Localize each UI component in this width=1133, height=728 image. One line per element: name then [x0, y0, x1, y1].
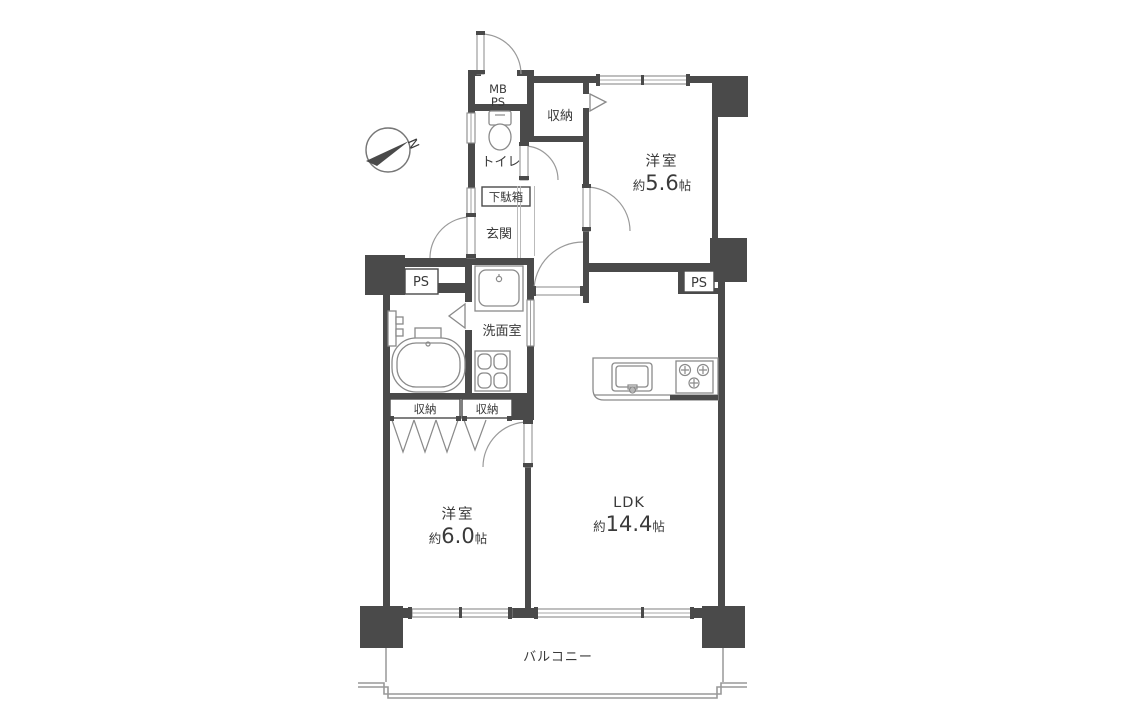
meter-box-label-line2: PS	[491, 95, 505, 109]
washing-machine-pan	[475, 351, 510, 391]
washbasin	[475, 266, 523, 311]
bath-folding-door	[449, 304, 465, 328]
column-mid-right	[710, 238, 747, 282]
door-swing	[481, 34, 521, 74]
floor-plan-canvas: N MB PS 収納 トイレ 下駄箱 玄関 PS PS 洗面室 収納 収納 洋室…	[0, 0, 1133, 728]
kitchen-counter	[593, 358, 718, 400]
svg-text:LDK: LDK	[613, 495, 645, 511]
bathtub	[392, 328, 465, 392]
ldk-label: LDK 約14.4帖	[593, 495, 665, 536]
closet-right-label: 収納	[476, 402, 499, 416]
bedroom2-label: 洋室 約6.0帖	[429, 506, 487, 548]
closet-folding-door	[590, 94, 606, 111]
stove	[676, 361, 713, 393]
compass-icon: N	[366, 128, 421, 172]
svg-text:約14.4帖: 約14.4帖	[593, 512, 665, 536]
door-swing	[483, 422, 528, 467]
svg-text:洋室: 洋室	[646, 153, 679, 170]
bedroom1-label: 洋室 約5.6帖	[633, 153, 691, 195]
toilet-fixture	[489, 111, 511, 150]
ps-right-label: PS	[691, 276, 707, 291]
washroom-label: 洗面室	[482, 323, 521, 339]
column-bottom-left	[360, 606, 403, 648]
closet-hanger-marks	[392, 420, 486, 452]
front-door-swing	[430, 217, 471, 258]
balcony-label: バルコニー	[523, 650, 593, 665]
balcony-railing	[358, 683, 747, 694]
balcony-railing	[358, 687, 747, 698]
svg-text:約5.6帖: 約5.6帖	[633, 171, 691, 195]
toilet-label: トイレ	[481, 155, 520, 170]
floor-plan-drawing: N MB PS 収納 トイレ 下駄箱 玄関 PS PS 洗面室 収納 収納 洋室…	[0, 0, 1133, 728]
closet-left-label: 収納	[414, 402, 437, 416]
svg-text:約6.0帖: 約6.0帖	[429, 524, 487, 548]
shower-panel	[388, 311, 403, 346]
door-swing	[524, 146, 558, 180]
column-bottom-right	[702, 606, 745, 648]
kitchen-sink	[612, 363, 652, 393]
meter-box-label-line1: MB	[489, 82, 507, 96]
svg-text:洋室: 洋室	[442, 506, 475, 523]
shoe-cabinet-label: 下駄箱	[489, 190, 524, 204]
column-top-right	[712, 76, 748, 117]
entrance-label: 玄関	[486, 227, 512, 242]
door-swing	[534, 242, 583, 291]
ps-left-label: PS	[413, 275, 429, 290]
door-swing	[586, 187, 630, 231]
closet-top-label: 収納	[547, 109, 573, 124]
